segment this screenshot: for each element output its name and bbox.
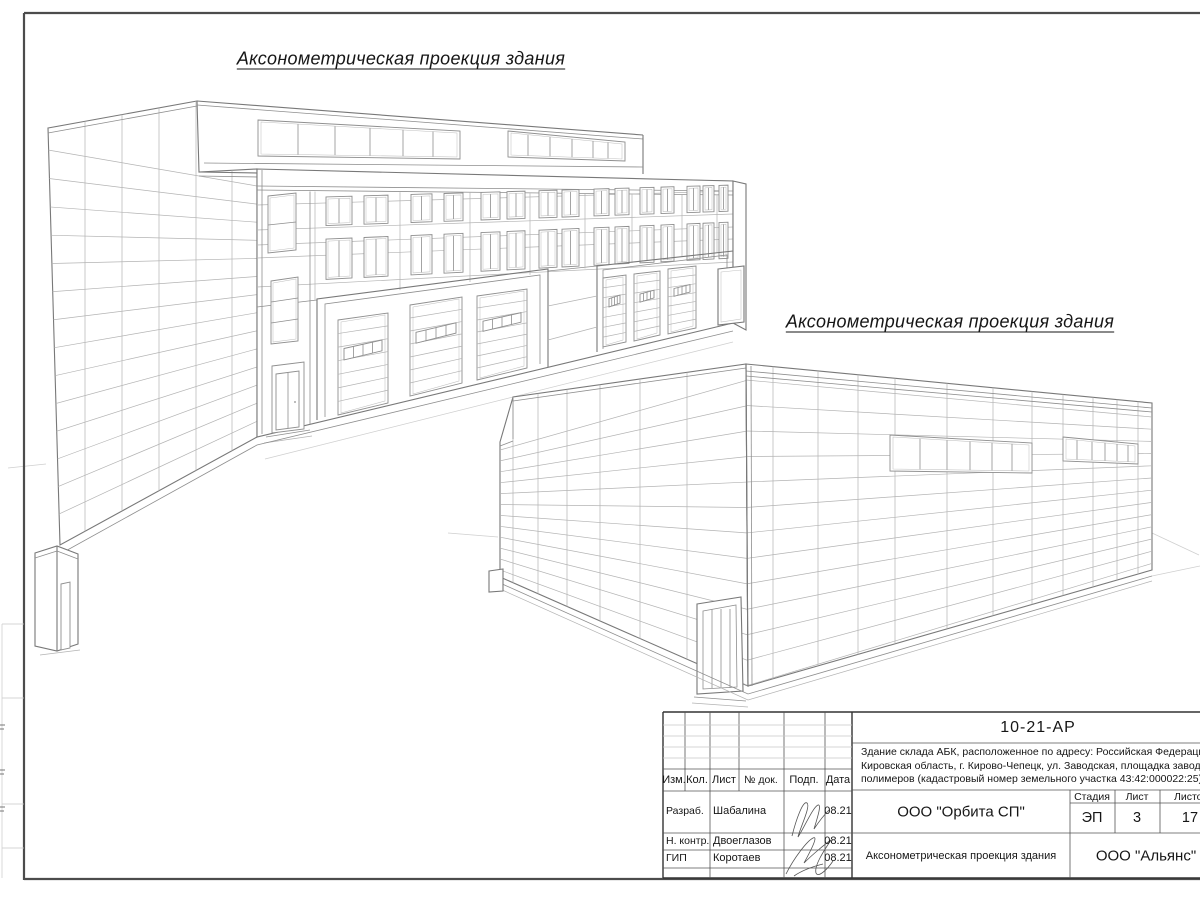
stamp-project-address: Здание склада АБК, расположенное по адре… bbox=[861, 746, 1200, 787]
stamp-col-doc: № док. bbox=[744, 774, 778, 786]
stamp-name-ncontrol: Двоеглазов bbox=[713, 835, 771, 847]
stamp-role-ncontrol: Н. контр. bbox=[666, 835, 709, 847]
stamp-stage-label: Стадия bbox=[1074, 791, 1110, 803]
stamp-col-date: Дата bbox=[826, 774, 850, 786]
stamp-name-gip: Коротаев bbox=[713, 852, 761, 864]
stamp-date-developer: 08.21 bbox=[824, 805, 852, 817]
stamp-sheets-value: 17 bbox=[1182, 810, 1198, 826]
address-line-1: Здание склада АБК, расположенное по адре… bbox=[861, 746, 1200, 760]
stamp-col-kol: Кол. bbox=[686, 774, 708, 786]
stamp-org2: ООО "Альянс" bbox=[1096, 848, 1196, 865]
stamp-sheet-title: Аксонометрическая проекция здания bbox=[866, 850, 1056, 862]
stamp-stage-value: ЭП bbox=[1082, 810, 1103, 826]
stamp-col-izm: Изм. bbox=[662, 774, 686, 786]
stamp-sheet-label: Лист bbox=[1126, 791, 1149, 803]
address-line-2: Кировская область, г. Кирово-Чепецк, ул.… bbox=[861, 760, 1200, 774]
stamp-col-list: Лист bbox=[712, 774, 736, 786]
stamp-date-gip: 08.21 bbox=[824, 852, 852, 864]
stamp-name-developer: Шабалина bbox=[713, 805, 766, 817]
stamp-role-gip: ГИП bbox=[666, 852, 687, 864]
stamp-sheets-label: Листов bbox=[1174, 791, 1200, 803]
stamp-doc-number: 10-21-АР bbox=[1000, 719, 1076, 737]
drawing-caption-bottom: Аксонометрическая проекция здания bbox=[786, 312, 1114, 333]
drawing-caption-top: Аксонометрическая проекция здания bbox=[237, 49, 565, 70]
stamp-role-developer: Разраб. bbox=[666, 805, 704, 817]
stamp-sheet-value: 3 bbox=[1133, 810, 1141, 826]
drawing-sheet: { "sheet": { "caption_top": "Аксонометри… bbox=[0, 0, 1200, 900]
stamp-org: ООО "Орбита СП" bbox=[897, 804, 1025, 821]
stamp-col-sign: Подп. bbox=[789, 774, 818, 786]
address-line-3: полимеров (кадастровый номер земельного … bbox=[861, 773, 1200, 787]
stamp-date-ncontrol: 08.21 bbox=[824, 835, 852, 847]
